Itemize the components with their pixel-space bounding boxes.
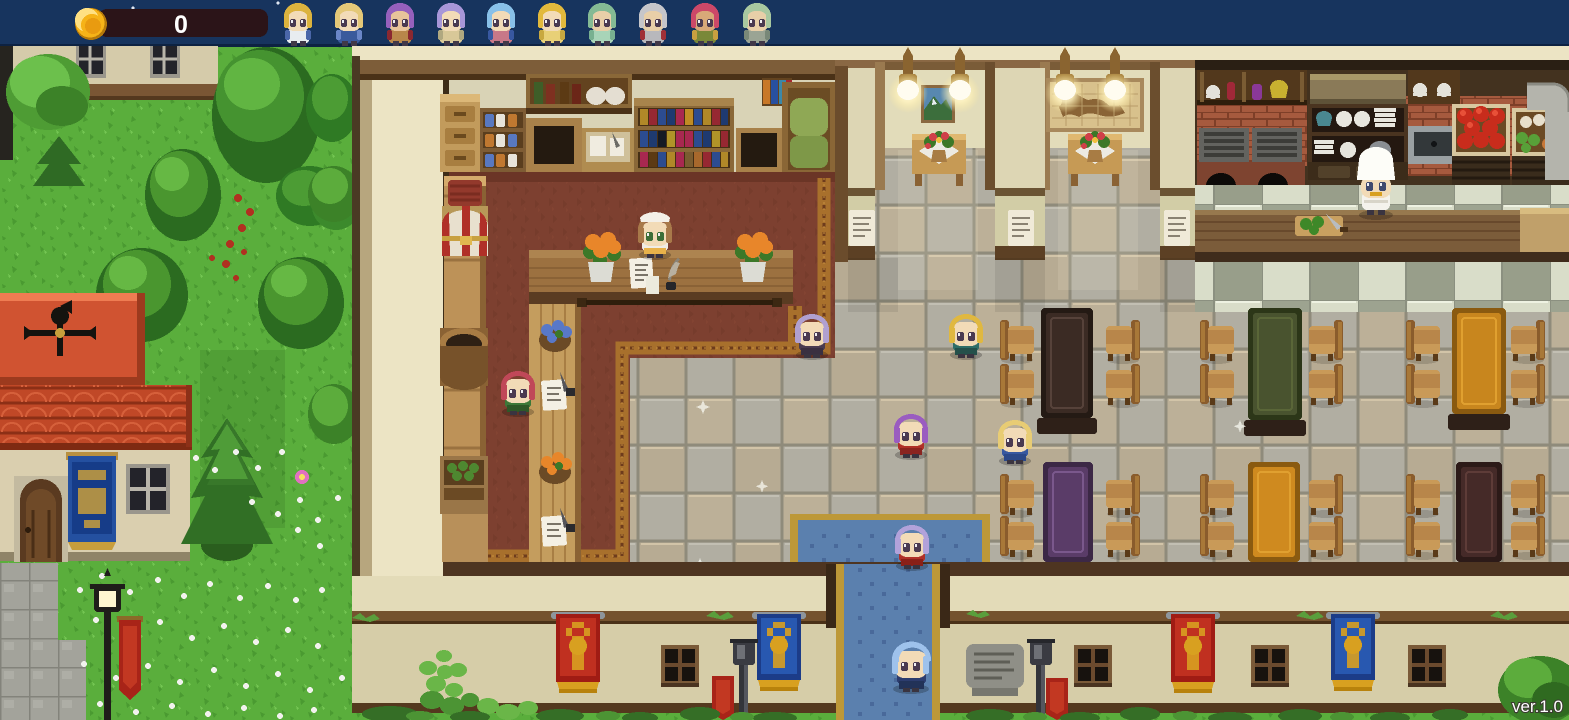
svg-text:0: 0	[174, 11, 188, 39]
svg-text:ver.1.0: ver.1.0	[1512, 697, 1563, 716]
